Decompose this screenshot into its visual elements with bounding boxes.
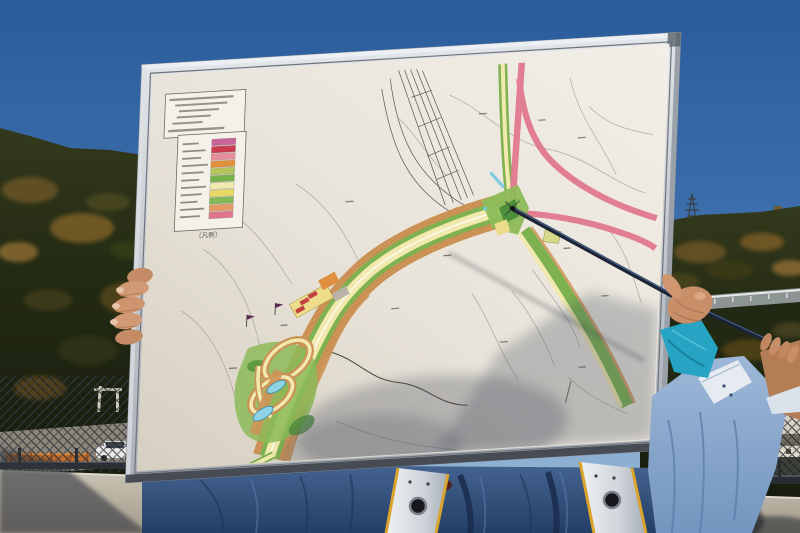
photo-of-map-board: 〔凡例〕: [0, 0, 800, 533]
legend-title: 〔凡例〕: [195, 230, 221, 241]
legend-swatch-magenta: [212, 138, 236, 146]
pointer-tip: [511, 207, 515, 211]
legend-swatch-light-orange: [209, 204, 233, 212]
title-block: [164, 89, 246, 138]
legend-swatch-rose: [209, 211, 233, 219]
map-board: 〔凡例〕: [125, 32, 681, 502]
reflective-strap: [386, 468, 448, 533]
legend-swatch-pale-yellow: [210, 182, 234, 190]
legend-swatch-orange: [211, 160, 235, 168]
legend-swatch-green: [210, 174, 234, 182]
legend-swatch-salmon-pink: [211, 153, 235, 161]
legend-swatch-yellow: [210, 189, 234, 197]
legend-swatch-yellow-green: [210, 167, 234, 175]
legend-swatch-red: [211, 145, 235, 153]
legend-swatch-mid-green: [209, 196, 233, 204]
legend-box: 〔凡例〕: [174, 131, 246, 241]
